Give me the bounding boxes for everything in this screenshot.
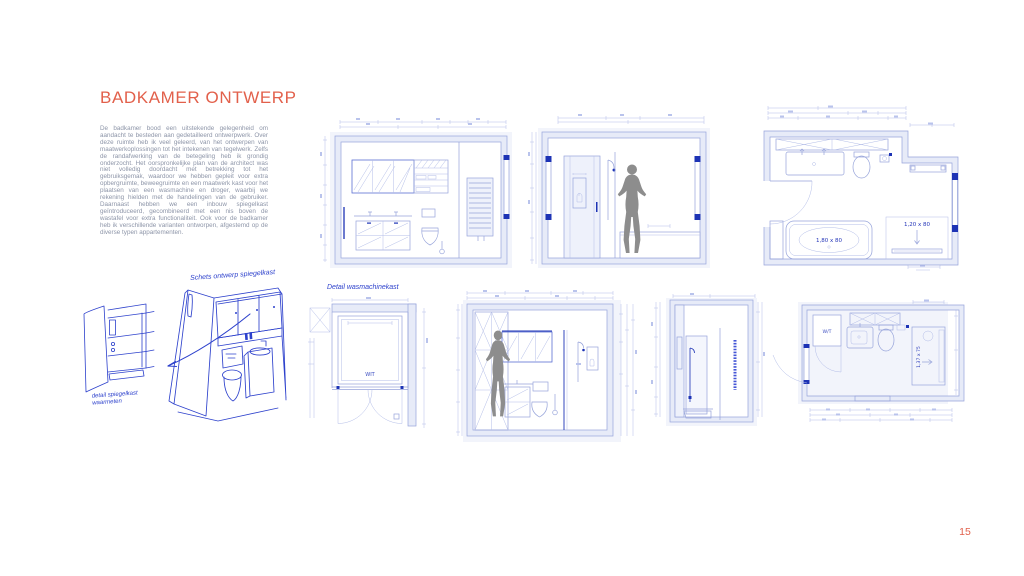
elevation-shower-wall-svg	[528, 112, 710, 270]
cabinet-box: WIT	[338, 316, 402, 384]
elevation-mirror-wall	[318, 110, 513, 270]
page-number: 15	[950, 526, 980, 538]
vanity-plan	[786, 149, 844, 175]
elevation-mirror-wall-svg	[318, 110, 513, 270]
floorplan-compact: W/T 1,37 x 75	[770, 300, 965, 430]
mirror-cabinet-plan	[776, 139, 888, 150]
shower-zone-plan: 1,20 x 80	[886, 217, 948, 259]
bench-plan	[910, 165, 946, 172]
section-shower	[650, 292, 780, 447]
sketch-mirror-detail	[76, 300, 160, 400]
elevation-shower-wall	[528, 112, 710, 270]
floorplan-bath-svg: 1,80 x 80 1,20 x 80	[758, 103, 963, 271]
towel-radiator	[467, 178, 493, 241]
plan-washer-cabinet-svg: WIT	[308, 298, 433, 438]
portfolio-page: BADKAMER ONTWERP De badkamer bood een ui…	[0, 0, 1024, 576]
shower-glass	[686, 336, 707, 414]
shower-size-label: 1,20 x 80	[904, 222, 930, 228]
window-right	[695, 156, 701, 220]
page-title: BADKAMER ONTWERP	[100, 88, 297, 108]
bath-size-label: 1,80 x 80	[816, 238, 842, 244]
dimension-lines	[768, 106, 954, 270]
plan-washer-cabinet: WIT	[308, 298, 433, 438]
sketch-lines	[169, 288, 286, 421]
hand-basin-plan	[880, 153, 892, 162]
door-plan	[763, 181, 812, 227]
sketch-mirror-detail-caption: detail spiegelkast waarmeten	[92, 390, 139, 407]
window-left	[546, 156, 552, 220]
sketch-lines	[84, 304, 154, 392]
closet-plan	[770, 221, 783, 259]
elevation-cabinet-wall	[455, 290, 640, 450]
wall-outline	[764, 131, 958, 265]
right-wall	[408, 304, 416, 426]
dimension-numbers	[780, 106, 933, 267]
floorplan-bath: 1,80 x 80 1,20 x 80	[758, 103, 963, 271]
cabinet-side-panel	[675, 305, 684, 417]
sketch-mirror-design	[158, 280, 298, 430]
adjacent-plan-fragment	[308, 308, 330, 418]
shelf-items	[235, 306, 275, 340]
cabinet-doors	[332, 386, 408, 424]
door-plan	[773, 344, 810, 384]
section-shower-svg	[650, 292, 780, 447]
intro-paragraph: De badkamer bood een uitstekende gelegen…	[100, 126, 268, 237]
sketch-mirror-detail-svg	[76, 300, 160, 400]
shower-cabin	[564, 156, 600, 258]
washer-detail-caption: Detail wasmachinekast	[327, 284, 399, 291]
washer-dryer-label: W/T	[823, 329, 832, 335]
elevation-cabinet-wall-svg	[455, 290, 640, 450]
sketch-mirror-design-svg	[158, 280, 298, 430]
shower2-size-label: 1,37 x 75	[916, 346, 922, 368]
window-right-plan	[952, 173, 958, 232]
towel-rail	[343, 207, 345, 239]
top-wall	[332, 304, 416, 312]
floorplan-compact-svg: W/T 1,37 x 75	[770, 300, 965, 430]
bathtub-plan: 1,80 x 80	[786, 221, 872, 259]
window-right	[504, 155, 510, 219]
toilet-plan	[853, 152, 870, 178]
cabinet-finish-label: WIT	[365, 372, 375, 378]
